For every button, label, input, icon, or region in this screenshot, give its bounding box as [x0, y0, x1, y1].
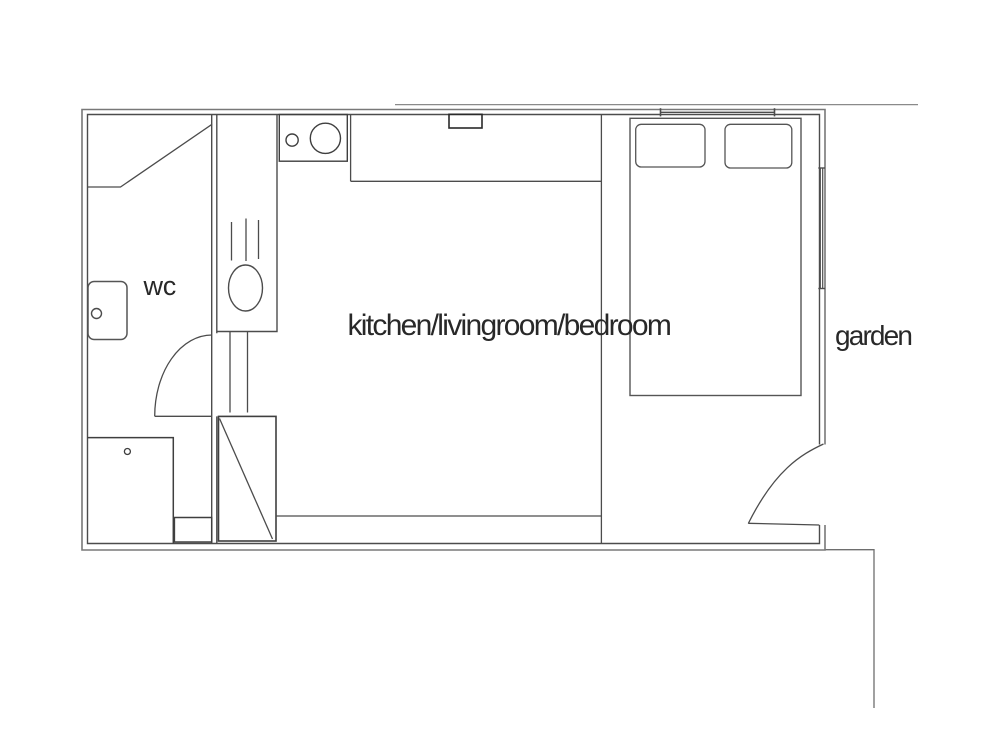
- svg-text:garden: garden: [835, 320, 911, 351]
- svg-text:kitchen/livingroom/bedroom: kitchen/livingroom/bedroom: [348, 309, 671, 342]
- svg-text:wc: wc: [143, 271, 177, 301]
